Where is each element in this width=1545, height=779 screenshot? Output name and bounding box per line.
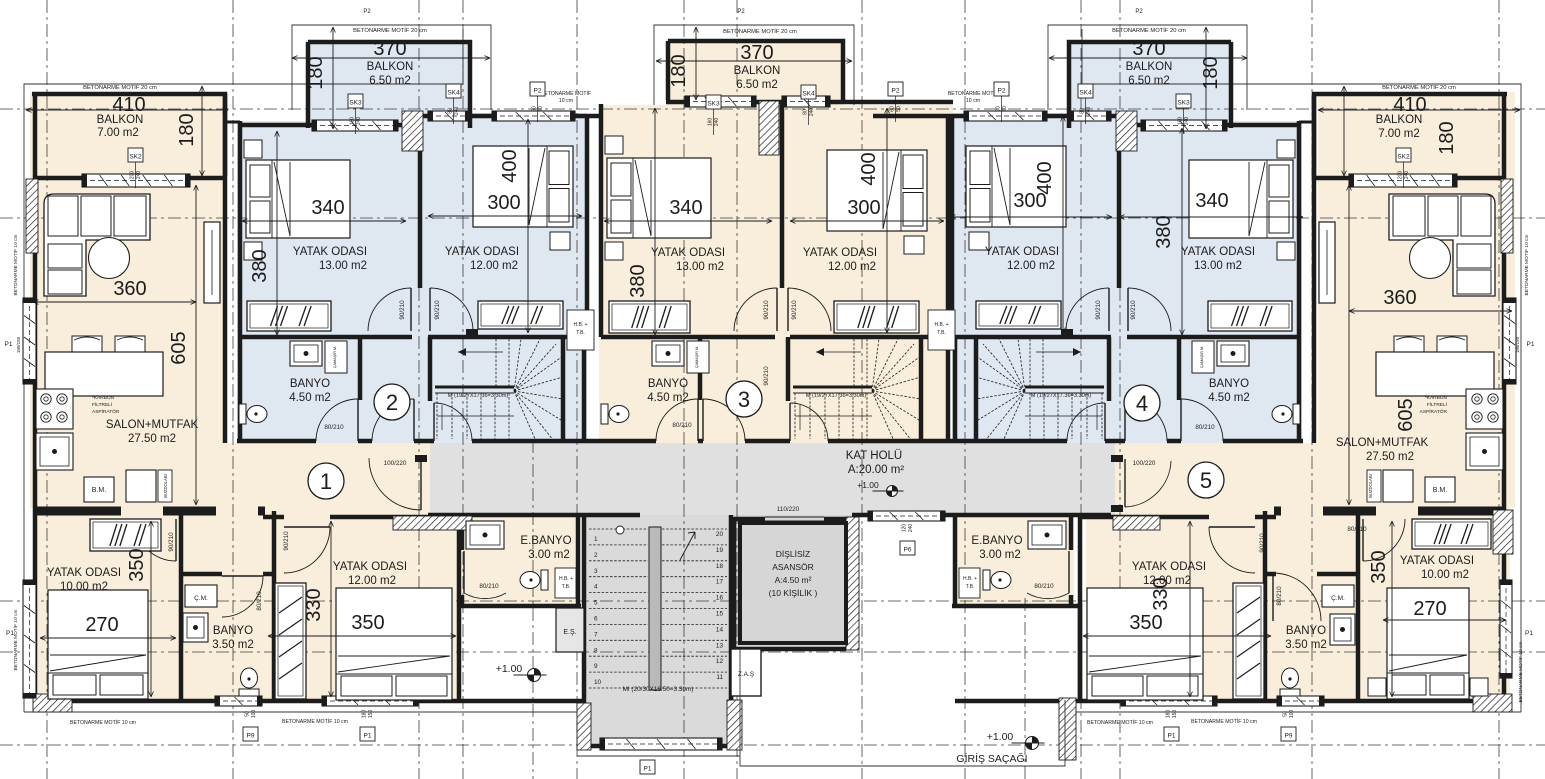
svg-text:ASPİRATÖR: ASPİRATÖR <box>92 408 120 415</box>
svg-text:18: 18 <box>716 563 724 570</box>
svg-text:8: 8 <box>594 647 598 654</box>
svg-text:*KARBON: *KARBON <box>1425 395 1448 401</box>
svg-text:7: 7 <box>594 631 598 638</box>
svg-text:90/210: 90/210 <box>1130 300 1137 320</box>
svg-text:350: 350 <box>351 612 384 634</box>
svg-text:19: 19 <box>716 547 724 554</box>
svg-text:BETONARME MOTİF 20 cm: BETONARME MOTİF 20 cm <box>83 84 157 91</box>
svg-text:4: 4 <box>1136 391 1148 416</box>
svg-text:SK3: SK3 <box>349 100 362 107</box>
svg-text:4.50 m2: 4.50 m2 <box>1208 392 1250 404</box>
svg-text:370: 370 <box>1132 38 1165 60</box>
svg-text:BUZDOLABI: BUZDOLABI <box>1368 474 1373 498</box>
svg-text:240: 240 <box>136 171 142 180</box>
svg-text:4.50 m2: 4.50 m2 <box>289 392 331 404</box>
svg-text:20: 20 <box>716 531 724 538</box>
svg-text:410: 410 <box>112 94 145 116</box>
svg-text:90/210: 90/210 <box>763 366 770 386</box>
svg-text:80/210: 80/210 <box>1347 526 1367 533</box>
svg-text:80/210: 80/210 <box>256 591 263 611</box>
svg-text:BETONARME MOTİF 20 cm: BETONARME MOTİF 20 cm <box>1382 84 1456 91</box>
svg-text:BALKON: BALKON <box>1376 114 1423 126</box>
svg-text:7.00 m2: 7.00 m2 <box>97 127 139 139</box>
svg-text:240: 240 <box>1086 107 1092 116</box>
svg-text:270: 270 <box>1413 598 1446 620</box>
svg-text:Ç.M.: Ç.M. <box>1331 595 1345 602</box>
svg-text:80: 80 <box>1080 108 1086 114</box>
svg-text:E.BANYO: E.BANYO <box>971 535 1022 547</box>
svg-text:YATAK ODASI: YATAK ODASI <box>985 246 1059 258</box>
svg-text:BANYO: BANYO <box>213 625 253 637</box>
svg-text:P1: P1 <box>644 766 652 773</box>
svg-text:80: 80 <box>803 109 809 115</box>
svg-text:3.00 m2: 3.00 m2 <box>979 549 1021 561</box>
svg-text:P2: P2 <box>737 9 745 15</box>
svg-text:GİRİŞ SAÇAĞI: GİRİŞ SAÇAĞI <box>956 752 1027 765</box>
svg-text:BETONARME MOTİF: BETONARME MOTİF <box>541 90 591 97</box>
svg-text:T.B.: T.B. <box>576 330 585 336</box>
svg-text:9: 9 <box>594 663 598 670</box>
svg-text:SK2: SK2 <box>1397 154 1410 161</box>
svg-text:100: 100 <box>1289 710 1295 719</box>
svg-text:60: 60 <box>890 106 896 112</box>
svg-text:BANYO: BANYO <box>290 378 330 390</box>
svg-text:DİŞLİSİZ: DİŞLİSİZ <box>776 549 810 559</box>
svg-text:120: 120 <box>902 524 908 533</box>
svg-text:50: 50 <box>896 106 902 112</box>
svg-text:80/210: 80/210 <box>672 422 692 429</box>
svg-text:10.00 m2: 10.00 m2 <box>1421 569 1469 581</box>
svg-text:P1: P1 <box>364 733 372 740</box>
svg-text:P1: P1 <box>1525 630 1533 637</box>
svg-text:90/210: 90/210 <box>1259 533 1266 553</box>
svg-text:SK4: SK4 <box>802 91 815 98</box>
svg-text:+1.00: +1.00 <box>857 480 879 490</box>
svg-text:SK2: SK2 <box>129 154 142 161</box>
svg-text:350: 350 <box>126 548 148 581</box>
svg-text:H.B. +: H.B. + <box>573 322 587 328</box>
svg-text:100/220: 100/220 <box>1133 460 1156 467</box>
svg-text:(10 KİŞİLİK ): (10 KİŞİLİK ) <box>769 588 818 598</box>
svg-text:110/220: 110/220 <box>777 506 800 513</box>
svg-text:3.50 m2: 3.50 m2 <box>1285 639 1327 651</box>
svg-text:200: 200 <box>1398 171 1404 180</box>
svg-text:160: 160 <box>708 118 714 127</box>
svg-text:BANYO: BANYO <box>648 378 688 390</box>
svg-text:H.B. +: H.B. + <box>963 576 977 582</box>
svg-text:H.B. +: H.B. + <box>559 576 573 582</box>
svg-text:P9: P9 <box>247 733 255 740</box>
svg-text:240: 240 <box>454 107 460 116</box>
svg-text:BALKON: BALKON <box>1126 61 1173 73</box>
svg-text:90/210: 90/210 <box>791 300 798 320</box>
svg-text:150: 150 <box>1172 710 1178 719</box>
svg-text:YATAK ODASI: YATAK ODASI <box>651 247 725 259</box>
svg-text:50: 50 <box>538 106 544 112</box>
svg-text:YATAK ODASI: YATAK ODASI <box>333 561 407 573</box>
svg-text:MI (20/30X16.50=3.30m): MI (20/30X16.50=3.30m) <box>623 686 694 693</box>
svg-text:T.B.: T.B. <box>966 584 975 590</box>
svg-text:BALKON: BALKON <box>97 114 144 126</box>
svg-text:12.00 m2: 12.00 m2 <box>348 575 396 587</box>
svg-text:90/210: 90/210 <box>434 300 441 320</box>
svg-text:160: 160 <box>350 117 356 126</box>
svg-text:P2: P2 <box>363 9 371 15</box>
svg-text:50: 50 <box>245 711 251 717</box>
svg-text:330: 330 <box>303 588 325 621</box>
svg-text:340: 340 <box>1195 190 1228 212</box>
svg-text:5: 5 <box>1200 468 1212 493</box>
svg-text:YATAK ODASI: YATAK ODASI <box>293 246 367 258</box>
svg-text:A:4.50 m²: A:4.50 m² <box>775 575 812 585</box>
svg-text:6.50 m2: 6.50 m2 <box>736 79 778 91</box>
svg-text:P9: P9 <box>1285 733 1293 740</box>
svg-text:P2: P2 <box>1135 9 1143 15</box>
svg-text:BETONARME MOTİF 10 cm: BETONARME MOTİF 10 cm <box>1523 235 1530 296</box>
svg-text:SK3: SK3 <box>707 101 720 108</box>
svg-text:14: 14 <box>716 626 724 633</box>
svg-text:50: 50 <box>1002 106 1008 112</box>
svg-text:YATAK ODASI: YATAK ODASI <box>803 247 877 259</box>
svg-text:400: 400 <box>1034 161 1056 194</box>
svg-text:YATAK ODASI: YATAK ODASI <box>1181 246 1255 258</box>
svg-text:360: 360 <box>113 278 146 300</box>
svg-text:B.M.: B.M. <box>92 487 106 494</box>
svg-text:E.BANYO: E.BANYO <box>520 535 571 547</box>
svg-text:240: 240 <box>908 524 914 533</box>
svg-text:340: 340 <box>669 197 702 219</box>
svg-text:380: 380 <box>1153 215 1175 248</box>
svg-text:13.00 m2: 13.00 m2 <box>319 260 367 272</box>
svg-text:380: 380 <box>627 264 649 297</box>
svg-text:ASPİRATÖR: ASPİRATÖR <box>1420 408 1448 415</box>
svg-text:BETONARME MOTİF 10 cm: BETONARME MOTİF 10 cm <box>12 235 19 296</box>
svg-text:12.00 m2: 12.00 m2 <box>470 260 518 272</box>
svg-text:80: 80 <box>448 108 454 114</box>
svg-text:60: 60 <box>532 106 538 112</box>
svg-text:1: 1 <box>594 536 598 543</box>
svg-text:3: 3 <box>738 387 750 412</box>
svg-text:KAT HOLÜ: KAT HOLÜ <box>846 450 902 462</box>
svg-text:270: 270 <box>85 614 118 636</box>
svg-text:P2: P2 <box>534 88 542 95</box>
svg-text:BALKON: BALKON <box>367 61 414 73</box>
svg-text:300: 300 <box>847 197 880 219</box>
svg-text:2: 2 <box>594 552 598 559</box>
svg-text:100/220: 100/220 <box>384 460 407 467</box>
svg-text:180: 180 <box>1436 121 1458 154</box>
svg-text:6: 6 <box>594 616 598 623</box>
svg-text:80/210: 80/210 <box>1195 424 1215 431</box>
svg-text:T.B.: T.B. <box>937 330 946 336</box>
svg-text:YATAK ODASI: YATAK ODASI <box>47 567 121 579</box>
svg-text:12: 12 <box>716 658 724 665</box>
svg-text:SK3: SK3 <box>1177 100 1190 107</box>
svg-text:BETONARME MOTİF 10 cm: BETONARME MOTİF 10 cm <box>70 719 136 726</box>
svg-text:3.50 m2: 3.50 m2 <box>212 639 254 651</box>
svg-text:BETONARME MOTİF: BETONARME MOTİF <box>948 90 998 97</box>
svg-text:10.00 m2: 10.00 m2 <box>60 581 108 593</box>
svg-text:BANYO: BANYO <box>1209 378 1249 390</box>
svg-text:P1: P1 <box>5 341 13 348</box>
svg-text:BETONARME MOTİF 10 cm: BETONARME MOTİF 10 cm <box>12 610 19 671</box>
svg-text:410: 410 <box>1393 94 1426 116</box>
svg-text:P2: P2 <box>998 88 1006 95</box>
svg-text:BETONARME MOTİF 10 cm: BETONARME MOTİF 10 cm <box>1087 719 1153 726</box>
svg-text:12.00 m2: 12.00 m2 <box>828 261 876 273</box>
svg-text:BETONARME MOTİF 20 cm: BETONARME MOTİF 20 cm <box>1112 27 1186 34</box>
svg-text:BUZDOLABI: BUZDOLABI <box>163 474 168 498</box>
svg-text:350: 350 <box>1368 550 1390 583</box>
svg-text:YATAK ODASI: YATAK ODASI <box>445 246 519 258</box>
svg-text:BETONARME MOTİF 10 cm: BETONARME MOTİF 10 cm <box>1517 642 1524 703</box>
svg-text:340: 340 <box>311 197 344 219</box>
svg-text:Ç.M.: Ç.M. <box>194 595 208 602</box>
svg-text:330: 330 <box>1150 577 1172 610</box>
svg-text:90/210: 90/210 <box>399 300 406 320</box>
svg-text:180: 180 <box>668 54 690 87</box>
svg-text:+1.00: +1.00 <box>987 731 1014 743</box>
svg-text:BALKON: BALKON <box>734 65 781 77</box>
svg-text:240: 240 <box>714 118 720 127</box>
svg-text:160: 160 <box>1178 117 1184 126</box>
svg-text:380: 380 <box>249 249 271 282</box>
svg-text:3: 3 <box>594 568 598 575</box>
svg-text:A:20.00 m²: A:20.00 m² <box>848 464 904 476</box>
svg-text:P2: P2 <box>892 88 900 95</box>
svg-text:10: 10 <box>594 679 602 686</box>
svg-text:150: 150 <box>368 710 374 719</box>
svg-text:11: 11 <box>716 674 723 681</box>
svg-text:100: 100 <box>251 710 257 719</box>
svg-text:FİLTRELİ: FİLTRELİ <box>1427 401 1447 408</box>
svg-text:H.B. +: H.B. + <box>934 322 948 328</box>
svg-text:P1: P1 <box>6 630 14 637</box>
svg-text:240: 240 <box>1404 171 1410 180</box>
svg-text:BETONARME MOTİF 20 cm: BETONARME MOTİF 20 cm <box>353 27 427 34</box>
svg-text:2: 2 <box>386 390 398 415</box>
svg-text:12.00 m2: 12.00 m2 <box>1007 260 1055 272</box>
svg-text:+1.00: +1.00 <box>496 663 523 675</box>
svg-text:YATAK ODASI: YATAK ODASI <box>1400 555 1474 567</box>
svg-text:P1: P1 <box>1168 733 1176 740</box>
svg-text:400: 400 <box>499 149 521 182</box>
svg-text:27.50 m2: 27.50 m2 <box>128 433 176 445</box>
svg-text:200: 200 <box>130 171 136 180</box>
svg-text:240: 240 <box>809 108 815 117</box>
svg-text:1: 1 <box>320 469 332 494</box>
svg-text:90/210: 90/210 <box>1095 300 1102 320</box>
svg-text:13: 13 <box>716 642 724 649</box>
svg-text:P1: P1 <box>1527 341 1535 348</box>
svg-text:180/150: 180/150 <box>1515 336 1520 353</box>
svg-text:80/210: 80/210 <box>1276 586 1283 606</box>
svg-text:180: 180 <box>1166 710 1172 719</box>
svg-text:YATAK ODASI: YATAK ODASI <box>1132 561 1206 573</box>
svg-text:50: 50 <box>1283 711 1289 717</box>
svg-text:T.B.: T.B. <box>562 584 571 590</box>
svg-text:360: 360 <box>1383 287 1416 309</box>
svg-text:240: 240 <box>1184 117 1190 126</box>
svg-text:BETONARME MOTİF 10 cm: BETONARME MOTİF 10 cm <box>1191 718 1257 725</box>
svg-text:80/210: 80/210 <box>479 583 499 590</box>
svg-text:4.50 m2: 4.50 m2 <box>647 392 689 404</box>
svg-text:15: 15 <box>716 611 724 618</box>
svg-text:*KARBON: *KARBON <box>92 395 115 401</box>
svg-text:180: 180 <box>305 56 327 89</box>
svg-text:M (19/27X17.36=3.30m): M (19/27X17.36=3.30m) <box>1031 393 1092 399</box>
svg-text:BETONARME MOTİF 20 cm: BETONARME MOTİF 20 cm <box>723 28 797 35</box>
svg-text:ÇAMAŞIR M.: ÇAMAŞIR M. <box>333 346 337 369</box>
svg-text:17: 17 <box>716 579 724 586</box>
svg-text:80/210: 80/210 <box>1034 583 1054 590</box>
svg-text:13.00 m2: 13.00 m2 <box>676 261 724 273</box>
svg-text:ASANSÖR: ASANSÖR <box>772 562 814 572</box>
svg-text:6.50 m2: 6.50 m2 <box>1128 75 1170 87</box>
svg-text:13.00 m2: 13.00 m2 <box>1194 260 1242 272</box>
svg-text:ÇAMAŞIR M.: ÇAMAŞIR M. <box>1200 346 1204 369</box>
svg-text:SALON+MUTFAK: SALON+MUTFAK <box>1336 437 1429 449</box>
svg-text:90/210: 90/210 <box>283 531 290 551</box>
svg-text:90/210: 90/210 <box>168 532 175 552</box>
svg-text:BETONARME MOTİF 10 cm: BETONARME MOTİF 10 cm <box>282 718 348 725</box>
svg-text:80/210: 80/210 <box>324 424 344 431</box>
svg-text:BANYO: BANYO <box>1286 625 1326 637</box>
svg-text:B.M.: B.M. <box>1433 487 1447 494</box>
svg-text:M (19/27X17.36=3.30m): M (19/27X17.36=3.30m) <box>806 393 867 399</box>
svg-text:E.Ş.: E.Ş. <box>563 629 576 636</box>
svg-text:10 cm: 10 cm <box>559 98 573 104</box>
svg-text:3.00 m2: 3.00 m2 <box>528 549 570 561</box>
svg-text:FİLTRELİ: FİLTRELİ <box>92 401 112 408</box>
svg-text:60: 60 <box>996 106 1002 112</box>
svg-text:180: 180 <box>362 710 368 719</box>
svg-text:300: 300 <box>487 192 520 214</box>
svg-text:P6: P6 <box>904 547 912 554</box>
svg-text:605: 605 <box>168 331 190 364</box>
svg-text:7.00 m2: 7.00 m2 <box>1378 128 1420 140</box>
svg-text:180/150: 180/150 <box>16 336 21 353</box>
svg-text:M (19/27X17.36=3.30m): M (19/27X17.36=3.30m) <box>448 393 509 399</box>
svg-text:16: 16 <box>716 595 724 602</box>
svg-text:SK4: SK4 <box>1079 90 1092 97</box>
svg-text:370: 370 <box>373 38 406 60</box>
svg-text:400: 400 <box>858 152 880 185</box>
svg-text:SALON+MUTFAK: SALON+MUTFAK <box>106 419 199 431</box>
svg-text:5: 5 <box>594 600 598 607</box>
svg-text:27.50 m2: 27.50 m2 <box>1366 451 1414 463</box>
svg-text:4: 4 <box>594 584 598 591</box>
svg-text:90/210: 90/210 <box>763 300 770 320</box>
svg-text:6.50 m2: 6.50 m2 <box>369 75 411 87</box>
svg-text:350: 350 <box>1129 612 1162 634</box>
svg-text:ÇAMAŞIR M.: ÇAMAŞIR M. <box>695 346 699 369</box>
svg-text:240: 240 <box>356 117 362 126</box>
svg-text:605: 605 <box>1395 398 1417 431</box>
svg-text:180: 180 <box>176 113 198 146</box>
svg-text:10 cm: 10 cm <box>966 98 980 104</box>
svg-text:SK4: SK4 <box>447 90 460 97</box>
svg-text:180: 180 <box>1200 56 1222 89</box>
